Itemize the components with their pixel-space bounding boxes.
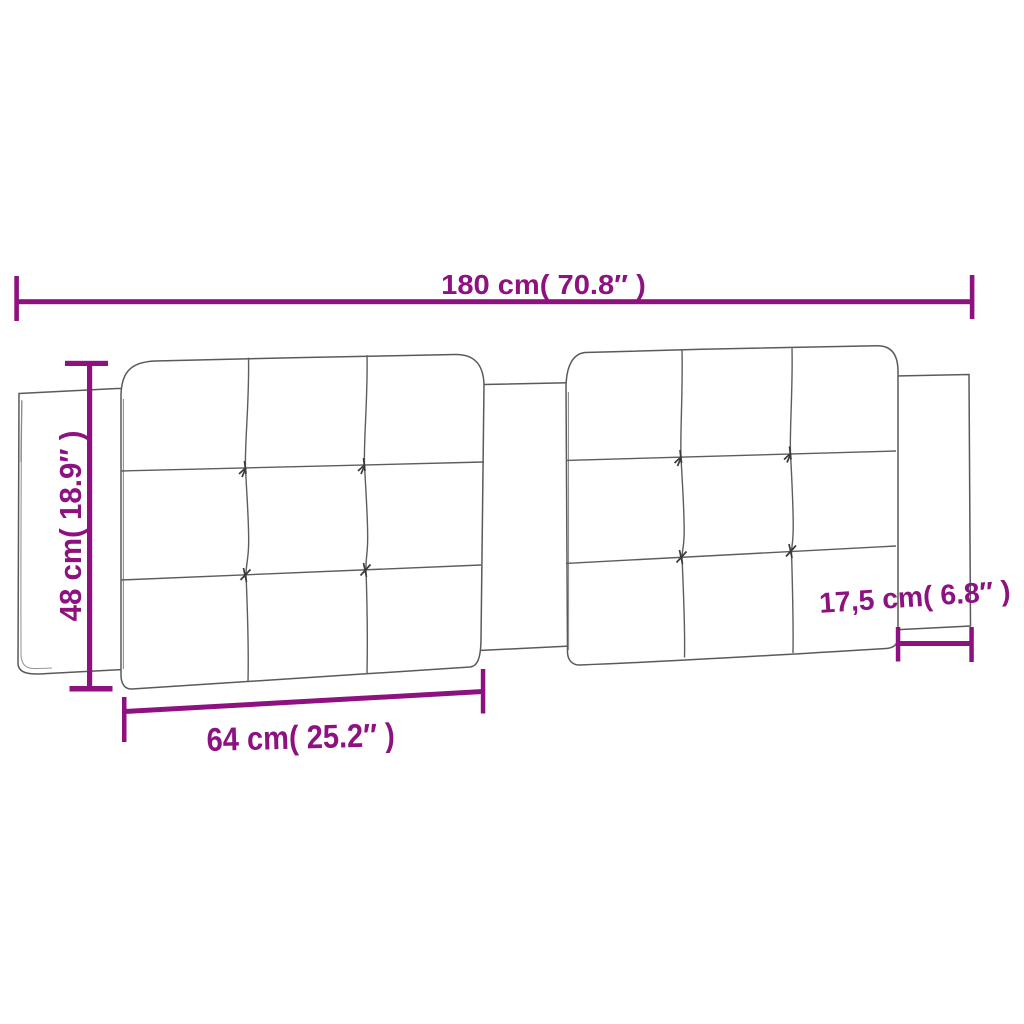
svg-text:64 cm( 25.2″ ): 64 cm( 25.2″ )	[206, 716, 395, 758]
svg-text:48 cm( 18.9″ ): 48 cm( 18.9″ )	[54, 431, 88, 622]
svg-text:180 cm( 70.8″ ): 180 cm( 70.8″ )	[441, 269, 646, 300]
